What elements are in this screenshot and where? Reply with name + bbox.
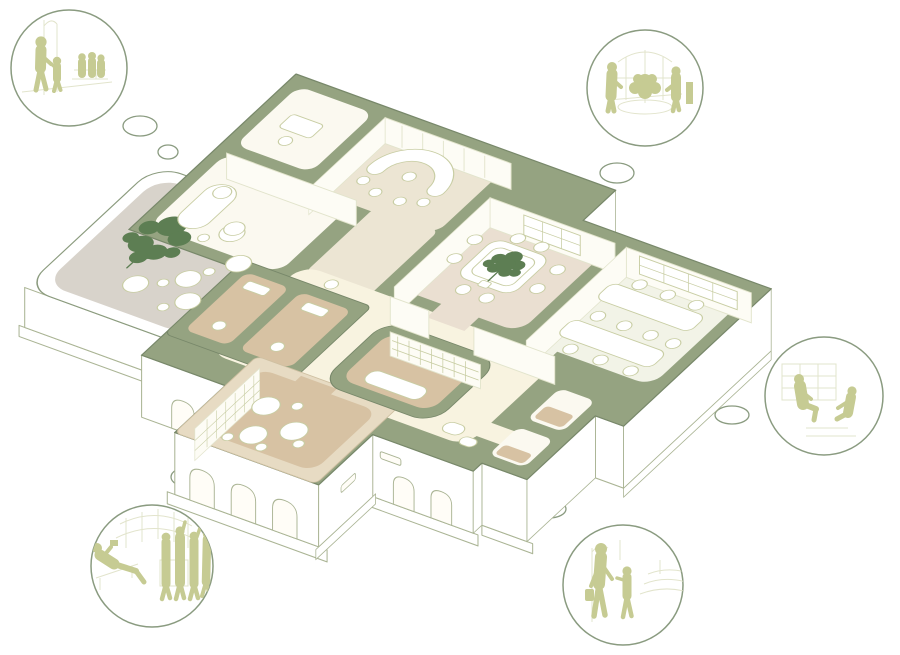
vignette-circle xyxy=(11,10,127,126)
vignette-bottom-left xyxy=(91,505,213,627)
seated-group-figures-icon xyxy=(78,52,104,74)
facade-step-sliver xyxy=(473,463,482,533)
bubble-icon xyxy=(158,145,178,159)
facade-east-step xyxy=(595,416,623,488)
vignette-right xyxy=(765,337,883,455)
bubble-icon xyxy=(715,406,749,424)
vignette-circle xyxy=(765,337,883,455)
diagram-canvas xyxy=(0,0,900,655)
bubble-icon xyxy=(600,163,634,183)
building xyxy=(0,74,804,562)
vignette-top-left xyxy=(11,10,127,126)
bubble-icon xyxy=(123,116,157,136)
axonometric-diagram xyxy=(0,0,900,655)
vignette-bottom-right xyxy=(563,525,688,645)
vignette-top-right xyxy=(587,30,703,146)
